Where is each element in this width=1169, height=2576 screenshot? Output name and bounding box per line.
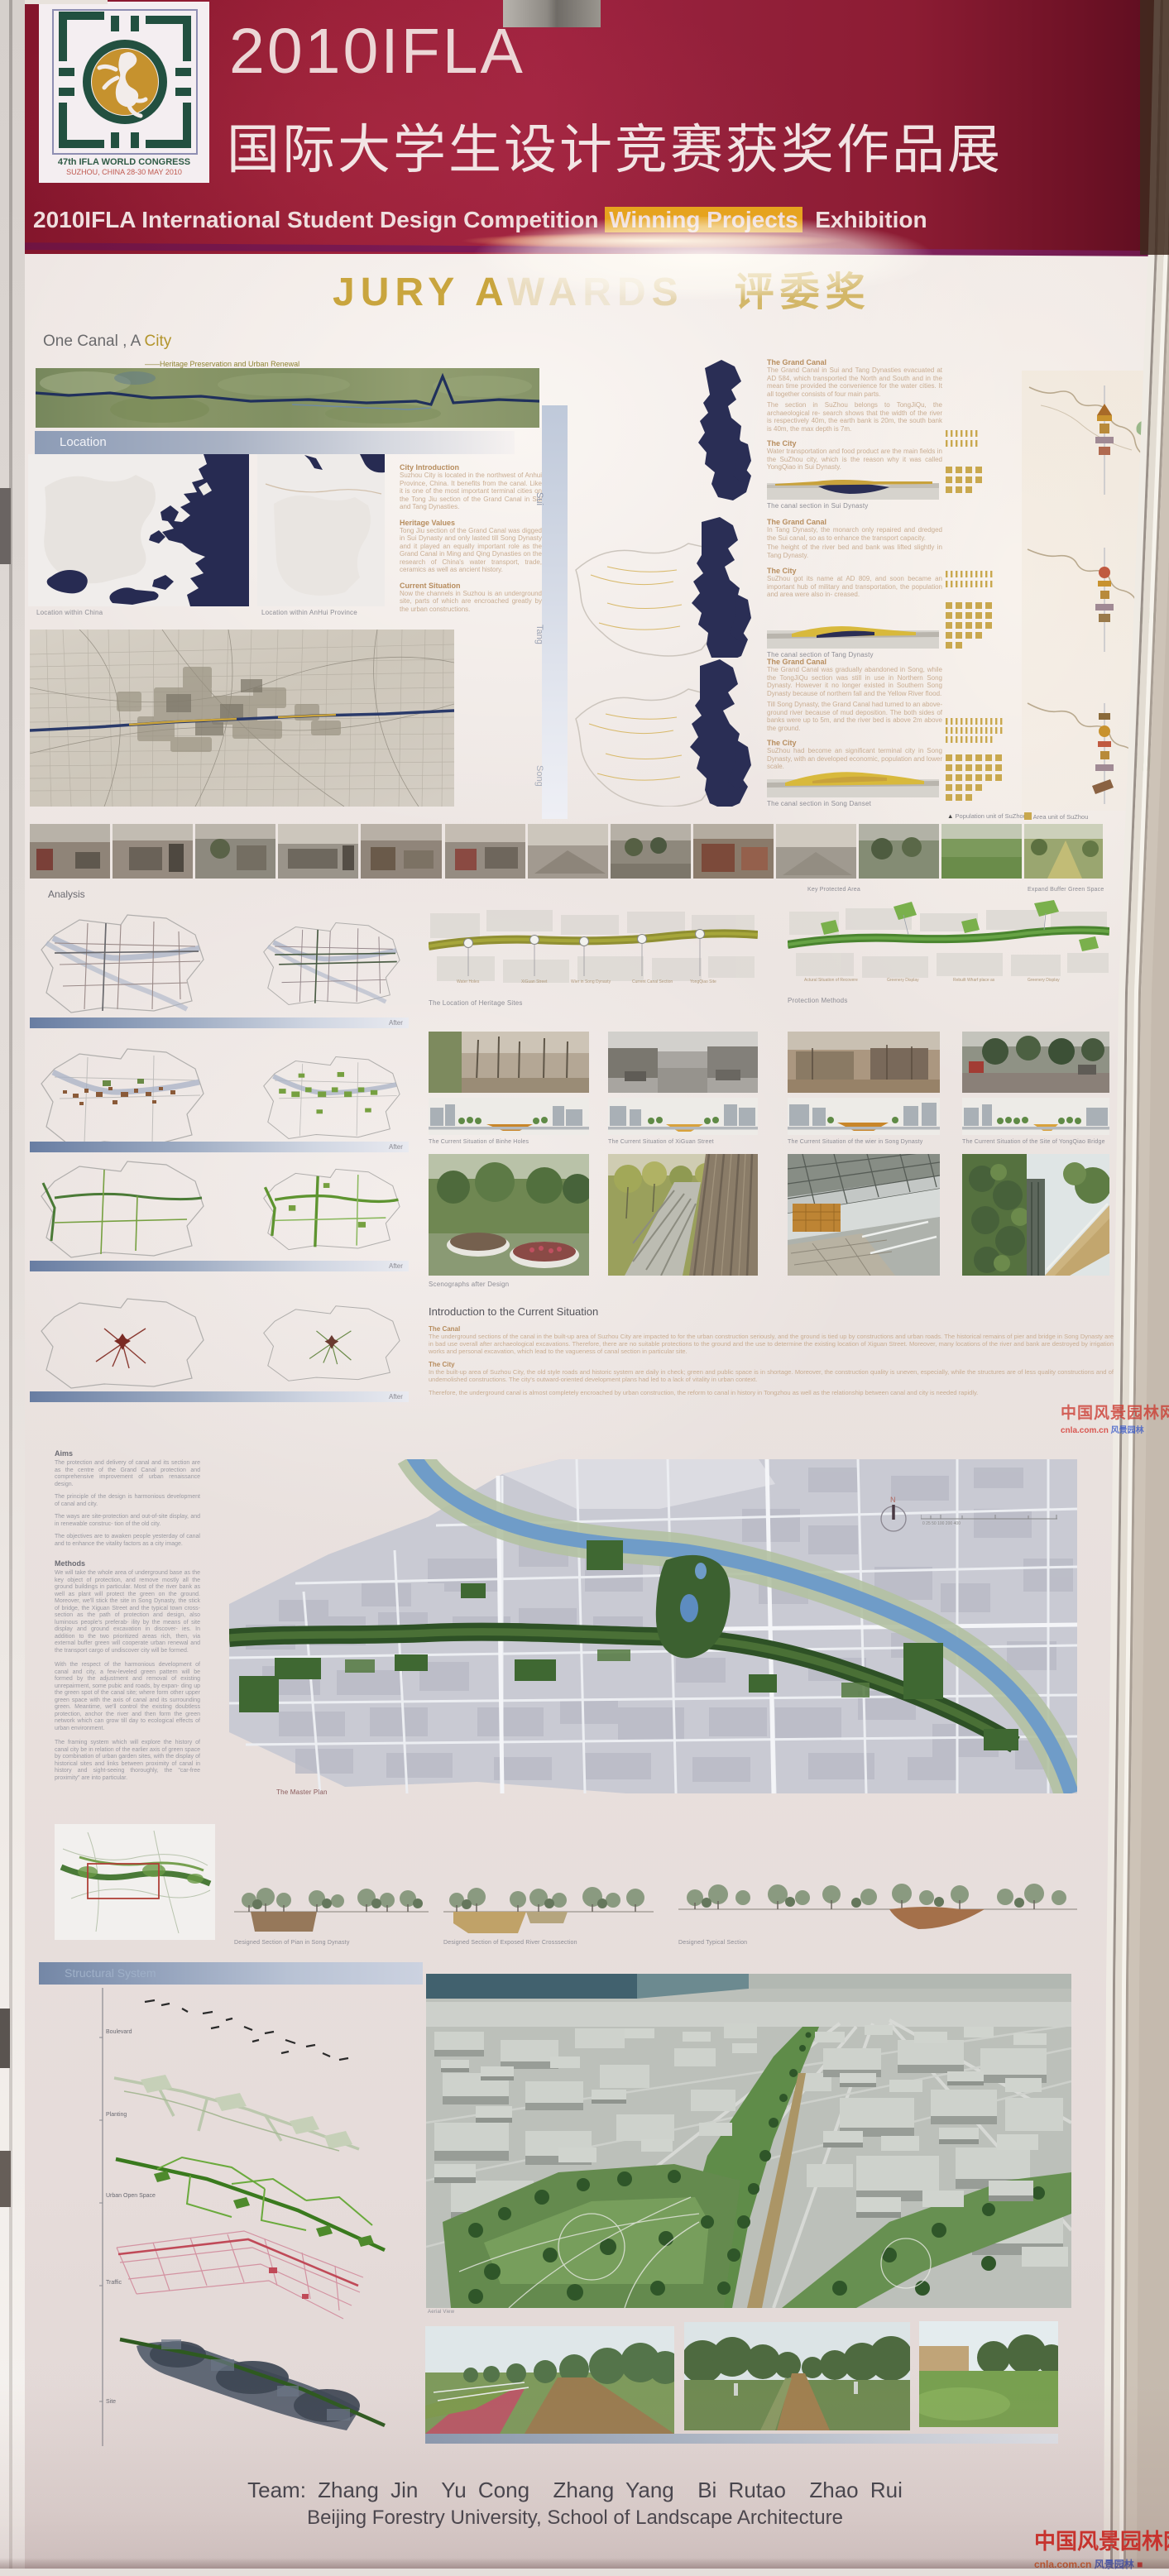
svg-text:XiGuan Street: XiGuan Street: [521, 979, 548, 984]
svg-text:Rebuilt Wharf place as: Rebuilt Wharf place as: [953, 978, 995, 983]
svg-text:Greenery Display: Greenery Display: [1028, 978, 1060, 983]
svg-text:Greenery Display: Greenery Display: [887, 978, 919, 983]
svg-text:Water Holes: Water Holes: [457, 979, 480, 984]
svg-text:Wier in Song Dynasty: Wier in Song Dynasty: [571, 979, 611, 984]
svg-text:0 25 50 100 200: 0 25 50 100 200 400: [922, 1521, 961, 1525]
svg-text:YongQiao Site: YongQiao Site: [690, 979, 716, 984]
svg-text:N: N: [890, 1496, 896, 1504]
svg-text:Actural Situation of Recovere: Actural Situation of Recovere: [804, 978, 858, 983]
svg-text:Current Canal Section: Current Canal Section: [632, 979, 673, 984]
